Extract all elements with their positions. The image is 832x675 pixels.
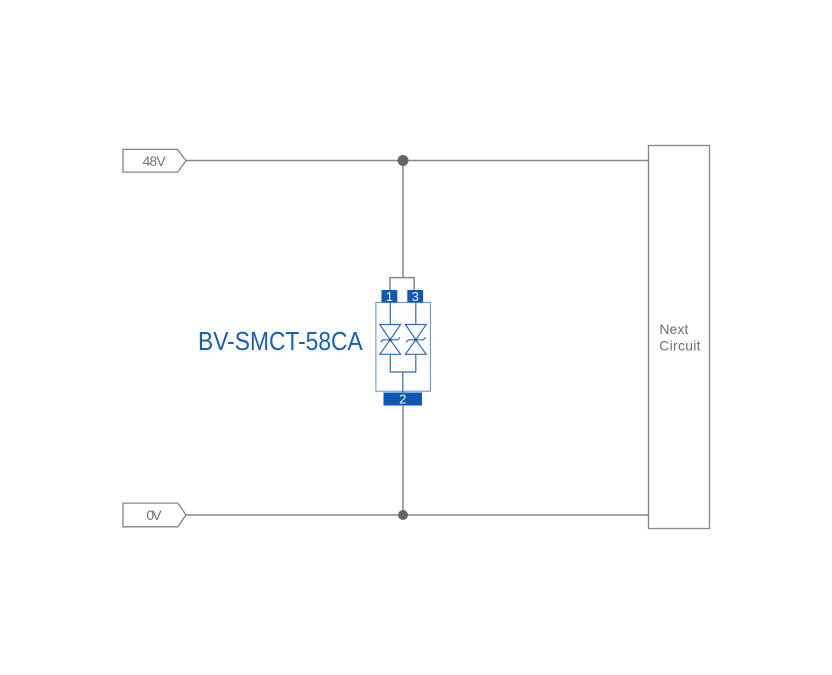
svg-text:3: 3 (412, 289, 419, 304)
svg-text:Circuit: Circuit (659, 339, 700, 354)
svg-text:0V: 0V (146, 507, 162, 523)
svg-text:Next: Next (660, 322, 689, 337)
svg-text:2: 2 (399, 392, 406, 407)
svg-text:48V: 48V (143, 153, 167, 169)
svg-text:BV-SMCT-58CA: BV-SMCT-58CA (198, 326, 363, 356)
svg-text:1: 1 (386, 289, 393, 304)
